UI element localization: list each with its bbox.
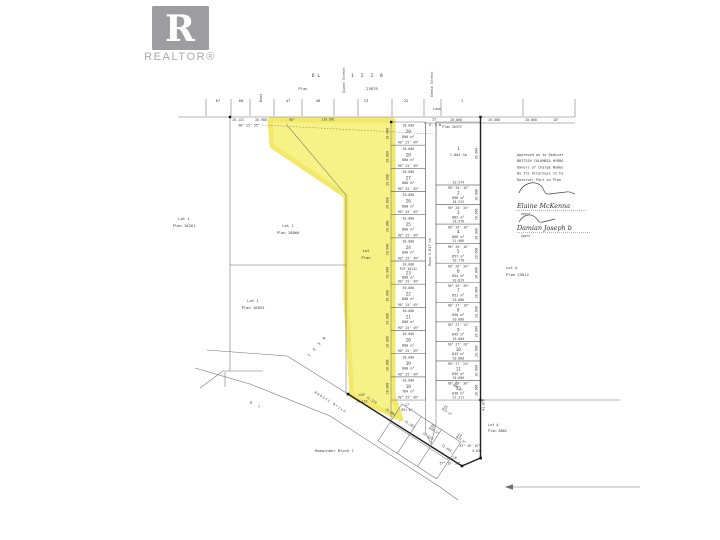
lot-dim: 30.000 xyxy=(403,170,415,174)
dim: 20.115 xyxy=(232,118,244,122)
dim: 90° xyxy=(289,118,295,122)
lot-area: 800 m² xyxy=(402,343,415,347)
lot-dim: 20.880 xyxy=(453,337,465,341)
lot-number: 18 xyxy=(406,384,412,389)
lot-side-dim: 20.000 xyxy=(386,174,390,186)
lot-side-dim: 20.000 xyxy=(386,151,390,163)
lot-side-dim: 20.000 xyxy=(475,267,479,279)
lot-number: 6 xyxy=(457,269,460,274)
lot-number: 22 xyxy=(406,291,412,296)
lot-bearing: 90° 25' 49" xyxy=(398,326,419,330)
lot-dim: 21.311 xyxy=(453,396,465,400)
lot-number: 8 xyxy=(457,308,460,313)
dease-street-label: Dease Street xyxy=(430,71,434,96)
west-neighbour-labels: Lot 1 Plan 18261 Lot 1 Plan 28066 Lot 1 … xyxy=(173,216,301,310)
dim: 20.000 xyxy=(525,118,537,122)
lot-area: 800 m² xyxy=(402,135,415,139)
lot-side-dim: 20.000 xyxy=(386,290,390,302)
lot-side-dim: 20.000 xyxy=(475,306,479,318)
lot-dim: 28.976 xyxy=(453,220,465,224)
neighbour-plan: Plan 18261 xyxy=(173,223,197,228)
east-lot-column: 11.004 ha20.57420.00090° 28' 16"2898 m²2… xyxy=(436,122,481,400)
lot-dim: 20.829 xyxy=(453,278,465,282)
highlighted-parcel xyxy=(270,120,401,419)
lot-bearing: 90° 25' 49" xyxy=(398,395,419,399)
lot-dim: 30.000 xyxy=(403,286,415,290)
lot-area: 800 m² xyxy=(402,227,415,231)
lot-dim: 20.880 xyxy=(453,356,465,360)
lot-side-dim: 20.000 xyxy=(475,384,479,396)
lot-bearing: 90° 25' 49" xyxy=(398,233,419,237)
neighbour-plan: Plan 25012 xyxy=(506,272,529,277)
lot-dim: 30.000 xyxy=(403,378,415,382)
neighbour-plan: Plan 16853 xyxy=(242,305,265,310)
lot-bearing: 90° 25' 49" xyxy=(398,141,419,145)
district-lot-number: 1 2 2 8 xyxy=(351,73,385,79)
lot-bearing: 90° 25' 49" xyxy=(398,164,419,168)
lot-dim: 30.000 xyxy=(403,309,415,313)
dim: 119.891 xyxy=(321,118,335,122)
lot-number: 4 xyxy=(457,230,460,235)
survey-plat-map: R REALTOR® D L 1 2 2 8 Plan 23879 Lane P… xyxy=(0,0,720,540)
lot-number: 26 xyxy=(406,199,412,204)
lot-side-dim: 20.000 xyxy=(386,128,390,140)
lot-dim: 30.000 xyxy=(403,193,415,197)
top-lot-67: 67 xyxy=(216,98,221,103)
plan-right-label: Plan 26373 xyxy=(442,125,461,129)
lot-area: 800 m² xyxy=(402,158,415,162)
east-neighbours: Lot A Plan 25012 Lot A Plan 8802 xyxy=(481,265,620,433)
lot-dim: 20.880 xyxy=(453,317,465,321)
plan-number: 23879 xyxy=(366,86,378,91)
lot-area: 784 m² xyxy=(402,390,415,394)
north-reference-arrow xyxy=(505,484,640,490)
lot-side-dim: 20.000 xyxy=(475,345,479,357)
lot-area: 1.004 ha xyxy=(450,153,467,157)
lot-bearing: 90° 25' 49" xyxy=(398,349,419,353)
dim: 5.633 xyxy=(472,449,482,453)
corner-angle: 110° xyxy=(358,393,366,397)
lot-dim: 20.778 xyxy=(453,259,465,263)
parcel-plan-label: Plan xyxy=(361,255,370,260)
lot-side-dim: 20.000 xyxy=(475,228,479,240)
lot-bearing: 90° 25' 49" xyxy=(398,372,419,376)
top-lot-47: 47 xyxy=(286,98,291,103)
lot-bearing: 90° 25' 49" xyxy=(398,210,419,214)
parcel-lot-label: Lot xyxy=(363,248,370,253)
dim: 23 xyxy=(432,118,436,122)
dim: 20.000 xyxy=(450,118,462,122)
dl-road-label: D L xyxy=(249,401,263,410)
realtor-logo-r: R xyxy=(165,8,196,50)
road-dim: 25.302 xyxy=(404,419,416,429)
lot-number: 7 xyxy=(457,288,460,293)
approval-line: BRITISH COLUMBIA HYDRO xyxy=(517,159,563,163)
lot-side-dim: 20.000 xyxy=(475,248,479,260)
lot-dim: 30.000 xyxy=(403,332,415,336)
plan-label: Plan xyxy=(298,86,307,91)
lot-number: 9 xyxy=(457,327,460,332)
lot-side-dim: 20.000 xyxy=(386,359,390,371)
lot-dim: 30.000 xyxy=(403,239,415,243)
district-lot-label: D L xyxy=(312,73,321,79)
road-mid-label: Road 2.017 ha xyxy=(428,238,432,265)
signatory-role: Agent xyxy=(521,234,530,238)
approval-block: Approved as to Dedicat BRITISH COLUMBIA … xyxy=(516,153,590,238)
mid-road: Road 2.017 ha xyxy=(426,122,437,444)
dim: 41.878 xyxy=(482,399,486,411)
lot-number: 28 xyxy=(406,152,412,157)
top-lot-48: 48 xyxy=(316,98,321,103)
neighbour-plan: Plan 28066 xyxy=(277,230,301,235)
neighbour-lot: Lot 1 xyxy=(178,216,190,221)
lot-side-dim: 20.000 xyxy=(386,244,390,256)
top-lot-22: 22 xyxy=(404,98,409,103)
realtor-logo-label: REALTOR® xyxy=(144,51,216,63)
lot-area: 800 m² xyxy=(402,320,415,324)
lot-bearing: 90° 25' 49" xyxy=(398,280,419,284)
lot-number: 10 xyxy=(456,347,462,352)
lot-number: 20 xyxy=(406,338,412,343)
lot-number: 11 xyxy=(456,366,462,371)
approval-line: By Its Attorneys In Fa xyxy=(517,172,563,176)
top-lot-23: 23 xyxy=(364,98,369,103)
signatory-name: Elaine McKenna xyxy=(516,202,570,210)
top-lot-numbers: 67 68 47 48 23 22 1 xyxy=(216,98,464,103)
lot-dim: 20.880 xyxy=(453,298,465,302)
road-dim: 21.319 xyxy=(422,431,434,441)
cluster-lot-labels: 13909 m²15921 m²16648 m²14973 m² xyxy=(428,380,467,444)
lot-side-dim: 20.000 xyxy=(475,365,479,377)
lot-dim: 30.000 xyxy=(403,147,415,151)
bearing: 90° 25' 55" xyxy=(238,124,259,128)
lane-label: Lane xyxy=(433,107,441,111)
lot-side-dim: 20.000 xyxy=(475,189,479,201)
lot-side-dim: 20.000 xyxy=(475,148,479,160)
lot-number: 25 xyxy=(406,222,412,227)
neighbour-lot: Lot 1 xyxy=(282,223,294,228)
lot-side-dim: 20.000 xyxy=(475,326,479,338)
lot-number: 3 xyxy=(457,210,460,215)
lot-dim: 21.986 xyxy=(453,239,465,243)
lot-area: 800 m² xyxy=(402,251,415,255)
lot-bearing: 90° 25' 49" xyxy=(398,256,419,260)
lot-number: 27 xyxy=(406,176,412,181)
top-lot-1: 1 xyxy=(461,98,464,103)
lot-area: 800 m² xyxy=(402,367,415,371)
lot-area: 800 m² xyxy=(402,181,415,185)
neighbour-lot: Lot A xyxy=(506,265,518,270)
lot-dim: 30.000 xyxy=(403,355,415,359)
lot-number: 2 xyxy=(457,190,460,195)
top-lot-68: 68 xyxy=(239,98,244,103)
bearing: 87° 49' 07" xyxy=(459,444,480,448)
neighbour-plan: Plan 8802 xyxy=(488,429,507,433)
abbott-drive-label: Abbott Drive xyxy=(314,390,347,414)
neighbour-lot: Lot A xyxy=(488,423,499,427)
lot-number: 1 xyxy=(457,146,460,151)
lot-area: 800 m² xyxy=(402,297,415,301)
lot-dim: 28.225 xyxy=(453,200,465,204)
road-top-label: Road xyxy=(259,94,263,102)
lot-side-dim: 20.000 xyxy=(386,313,390,325)
lot-bearing: 90° 25' 49" xyxy=(398,187,419,191)
queen-street-label: Queen Street xyxy=(342,67,346,92)
dim: 20.980 xyxy=(255,118,267,122)
lot-dim: 30.000 xyxy=(403,216,415,220)
signature-scribble xyxy=(519,215,555,222)
dl-1339-label: 1 3 3 9 xyxy=(306,334,327,357)
lot-side-dim: 20.000 xyxy=(386,267,390,279)
dim: 10° xyxy=(553,118,559,122)
lot-side-dim: 20.000 xyxy=(386,197,390,209)
lot-number: 24 xyxy=(406,245,412,250)
lot-side-dim: 20.000 xyxy=(386,383,390,395)
scanned-survey-plan-page: R REALTOR® D L 1 2 2 8 Plan 23879 Lane P… xyxy=(0,0,720,540)
lot-side-dim: 20.000 xyxy=(386,220,390,232)
neighbour-lot: Lot 1 xyxy=(247,298,259,303)
realtor-logo: R REALTOR® xyxy=(144,6,216,63)
lot-number: 19 xyxy=(406,361,412,366)
approval-line: Owners of Charge Numbe xyxy=(517,165,563,169)
dim: 20.000 xyxy=(488,118,500,122)
approval-line: Approved as to Dedicat xyxy=(517,153,563,157)
signature-scribble xyxy=(519,183,575,194)
lot-dim: 30.000 xyxy=(403,263,415,267)
dim: 6.116 xyxy=(447,456,457,460)
signatory-name: Damian Joseph b xyxy=(516,224,572,232)
lot-side-dim: 20.000 xyxy=(475,287,479,299)
lot-dim: 20.880 xyxy=(453,376,465,380)
lot-number: 5 xyxy=(457,249,460,254)
bearing: 57° 19' 36" xyxy=(439,462,460,466)
road-dim: 71.466 xyxy=(441,443,453,453)
lot-number: 29 xyxy=(406,129,412,134)
lot-side-dim: 20.000 xyxy=(475,208,479,220)
lot-bearing: 90° 25' 49" xyxy=(398,303,419,307)
lot-number: 21 xyxy=(406,315,412,320)
lot-dim: 30.000 xyxy=(403,124,415,128)
lot-dim: 20.574 xyxy=(453,181,465,185)
lot-side-dim: 20.000 xyxy=(386,336,390,348)
approval-line: Reserve; Part on Plan xyxy=(517,178,561,182)
lot-area: 800 m² xyxy=(402,204,415,208)
remainder-block-label: Remainder Block C xyxy=(315,448,354,453)
lot-area: 921 m² xyxy=(441,407,453,417)
